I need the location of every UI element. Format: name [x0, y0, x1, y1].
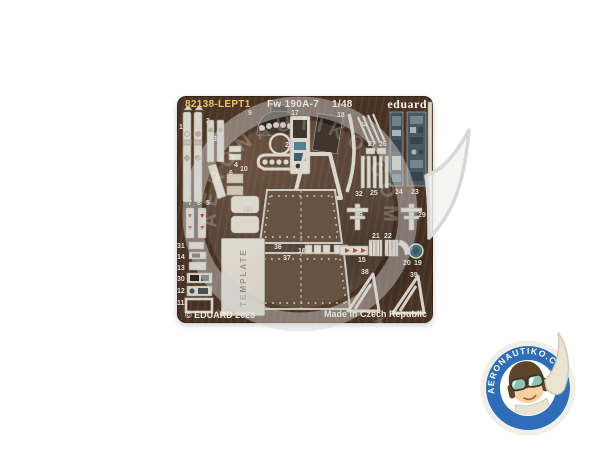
part-number: 14 — [177, 254, 185, 261]
scale-label: 1/48 — [332, 99, 353, 110]
product-photo: TEMPLATE 82138-LEPT1 Fw 190A-7 1/48 edua… — [0, 0, 600, 450]
triangle-frame-39 — [393, 276, 424, 313]
part-number: 39 — [410, 272, 418, 279]
subject-name: Fw 190A-7 — [267, 99, 319, 110]
part-number: 1 — [179, 124, 183, 131]
part-number: 32 — [355, 191, 363, 198]
part-number: 4 — [234, 162, 238, 169]
part-number: 11 — [177, 300, 184, 307]
console-23 — [407, 112, 426, 186]
part-number: 3 — [213, 136, 217, 143]
part-number: 23 — [411, 189, 419, 196]
eduard-logo: eduard — [387, 97, 427, 112]
part-number: 13 — [177, 265, 185, 272]
printed-panel-17 — [290, 116, 310, 174]
template-part: TEMPLATE — [221, 238, 265, 316]
edge-strip — [428, 102, 432, 234]
part-number: 38 — [361, 269, 369, 276]
dark-plate-18 — [312, 113, 342, 153]
console-24 — [390, 112, 403, 186]
copyright-text: © EDUARD 2023 — [185, 310, 255, 320]
part-number: 29 — [418, 212, 426, 219]
part-number: 17 — [291, 110, 299, 117]
part-number: 28 — [285, 142, 293, 149]
part-number: 22 — [384, 233, 392, 240]
photo-etch-fret: TEMPLATE 82138-LEPT1 Fw 190A-7 1/48 edua… — [177, 96, 433, 323]
part-number: 6 — [229, 170, 233, 177]
template-label: TEMPLATE — [239, 248, 248, 307]
part-number: 24 — [395, 189, 403, 196]
part-number: 34 — [360, 122, 368, 129]
part-number: 36 — [274, 244, 282, 251]
seatbelt-strips — [183, 105, 226, 202]
triangle-frame-38 — [348, 274, 379, 311]
part-number: 10 — [240, 166, 248, 173]
part-number: 8 — [197, 200, 201, 207]
origin-text: Made in Czech Republic — [324, 309, 427, 319]
part-number: 30 — [177, 276, 185, 283]
bit-26 — [377, 148, 386, 154]
part-number: 12 — [177, 288, 185, 295]
fret-parts-art — [177, 96, 433, 323]
part-number: 27 — [368, 141, 376, 148]
teal-disc-19 — [409, 244, 423, 258]
part-number: 19 — [414, 260, 422, 267]
strips-25 — [361, 156, 389, 188]
catalog-number: 82138-LEPT1 — [185, 99, 251, 110]
curved-part-20 — [398, 240, 410, 255]
riveted-panel-36 — [260, 190, 342, 243]
part-number: 15 — [358, 257, 366, 264]
part-number: 29 — [355, 212, 363, 219]
part-number: 21 — [372, 233, 380, 240]
part-number: 37 — [283, 255, 291, 262]
belts-red-marks — [186, 208, 206, 238]
curved-strip-32 — [347, 114, 354, 192]
strip-15 — [340, 246, 368, 255]
part-number: 2 — [206, 118, 210, 125]
comb-parts — [369, 240, 398, 256]
bit-27 — [366, 148, 375, 154]
part-number: 9 — [248, 110, 252, 117]
riveted-panel-37 — [253, 253, 350, 309]
part-number: 5 — [206, 200, 210, 207]
part-number: 31 — [177, 243, 185, 250]
part-number: 16 — [298, 248, 306, 255]
part-number: 7 — [188, 200, 192, 207]
part-number: 25 — [370, 190, 378, 197]
part-number: 26 — [379, 141, 387, 148]
part-number: 33 — [244, 208, 252, 215]
part-number: 20 — [403, 260, 411, 267]
small-parts-stack — [186, 242, 212, 312]
part-number: 18 — [337, 112, 345, 119]
aeronautiko-badge: AERONAUTIKO.COM ★ ★ ★ ★ ★ ★ ★ ★ ★ — [466, 322, 598, 454]
